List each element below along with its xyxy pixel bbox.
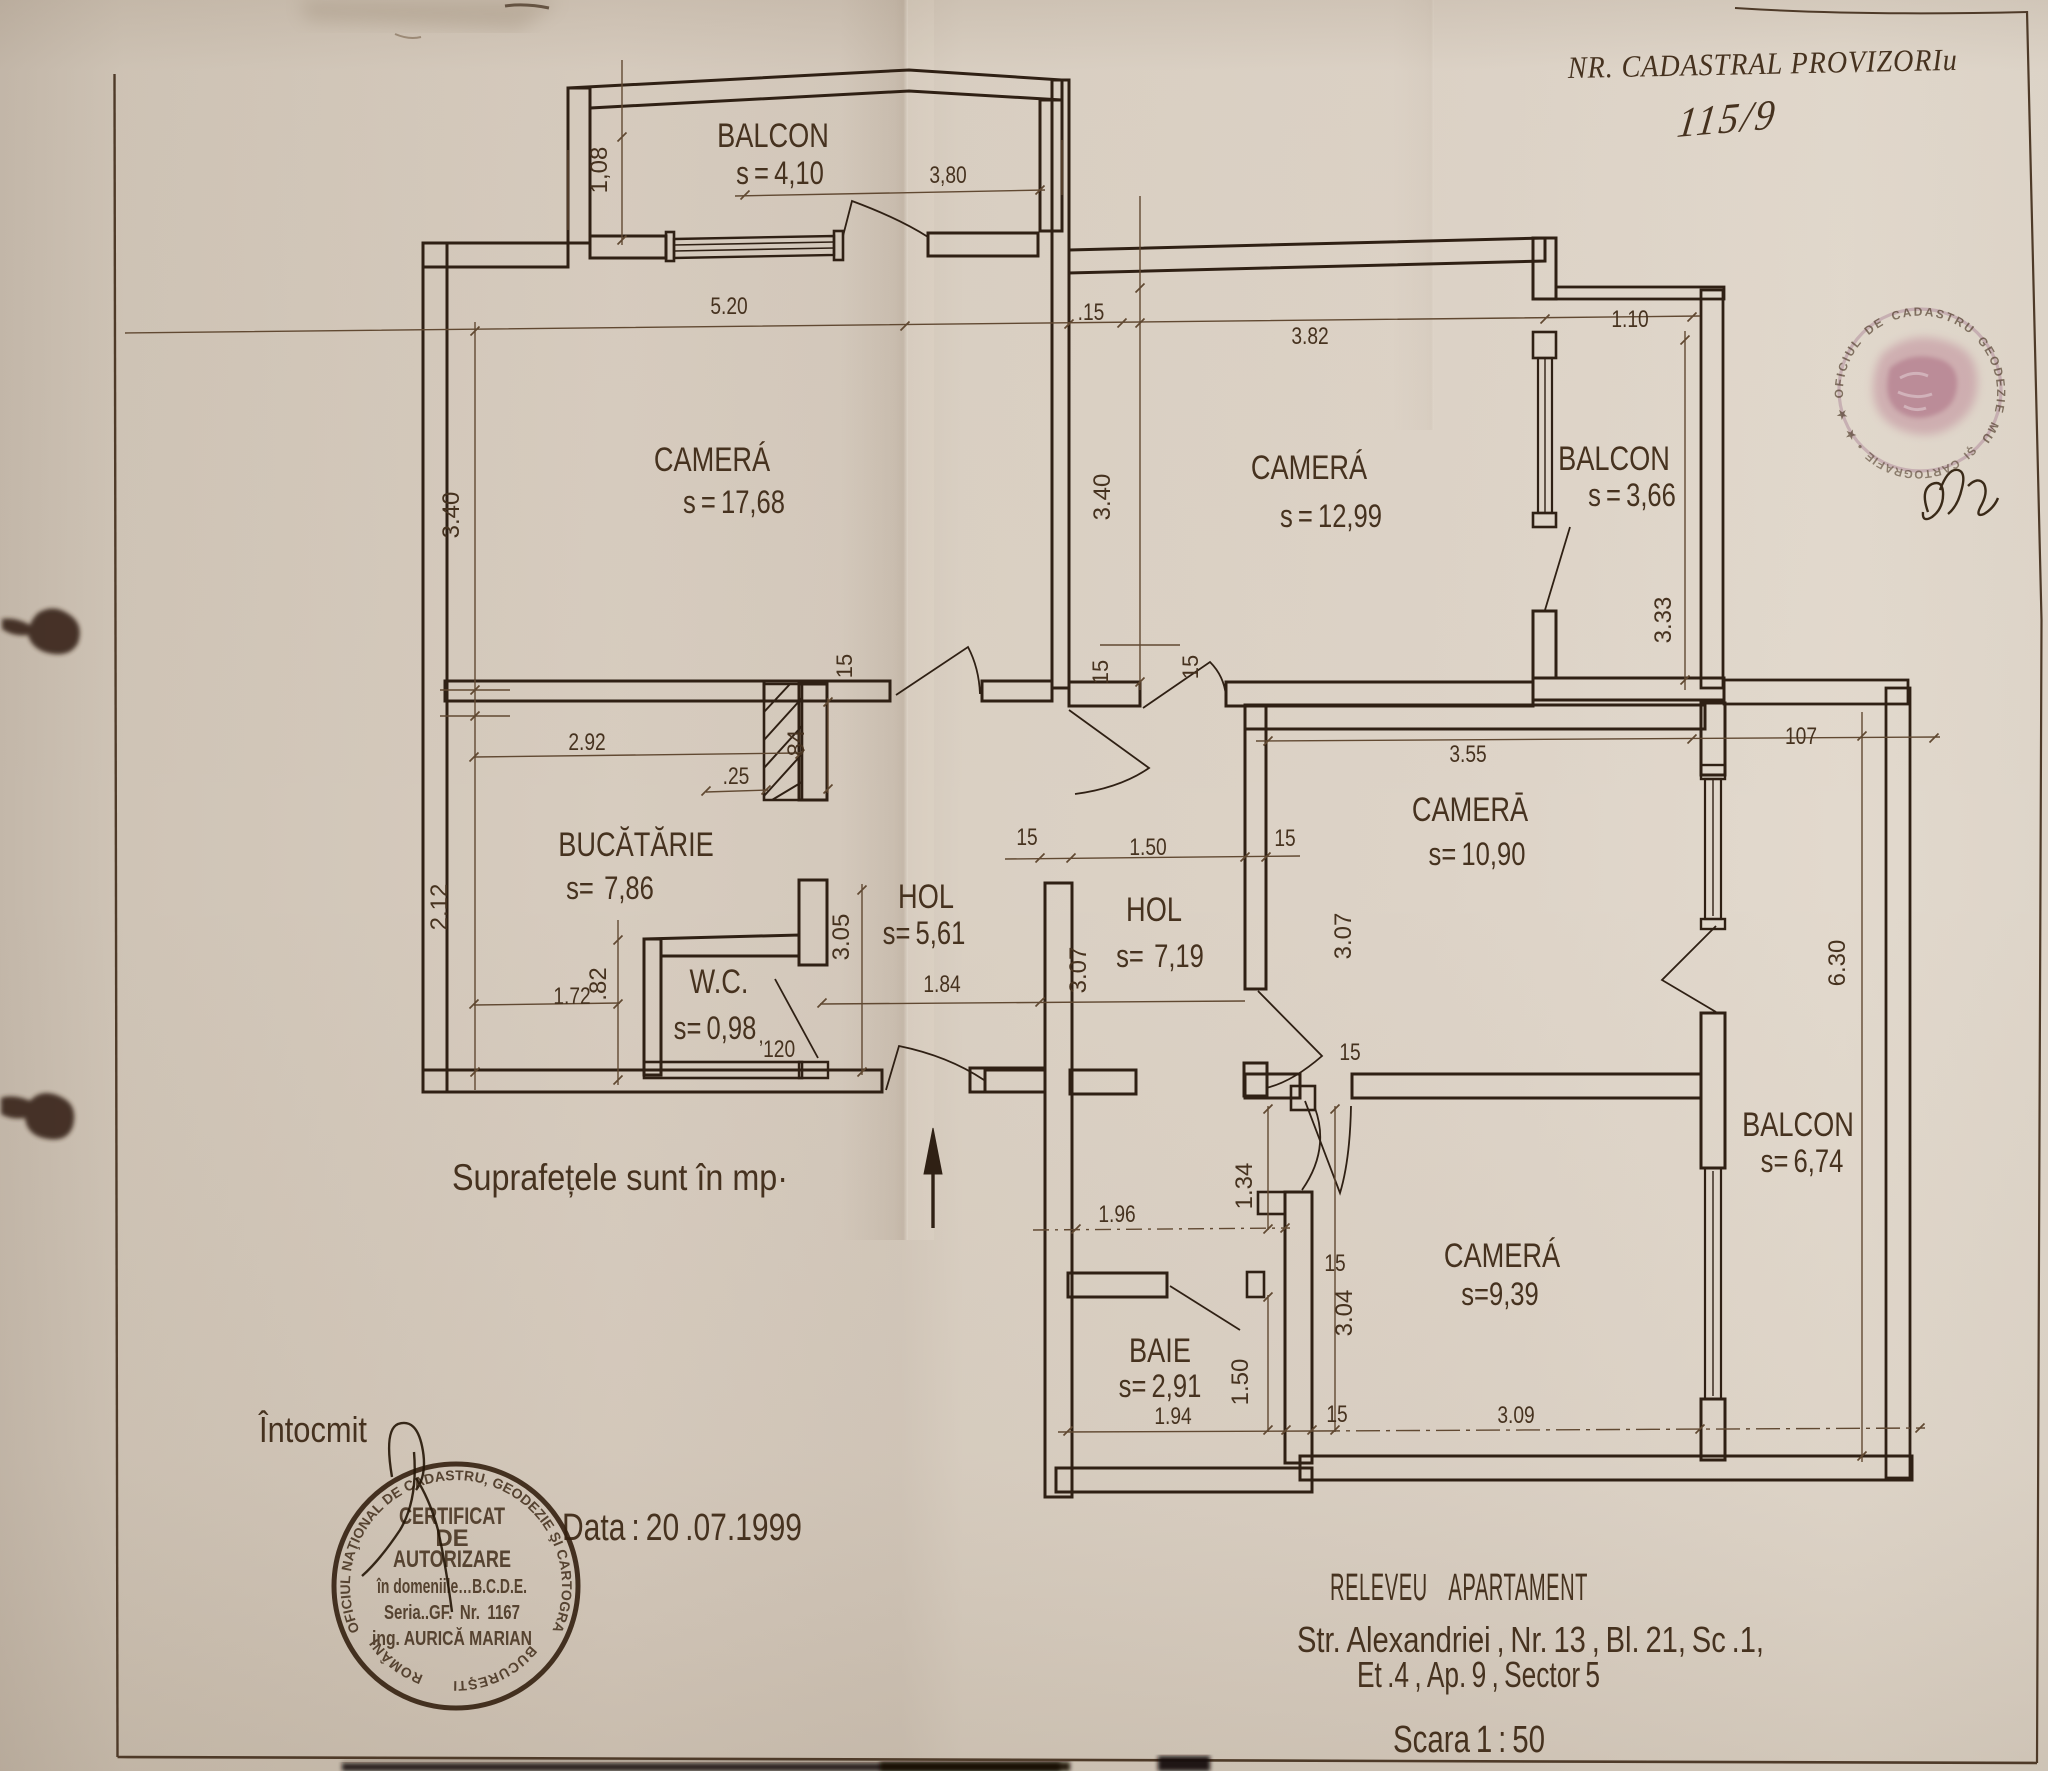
svg-text:1.50: 1.50 — [1227, 1359, 1254, 1406]
svg-text:ing. AURICĂ MARIAN: ing. AURICĂ MARIAN — [372, 1627, 532, 1650]
svg-text:în domeniile…B.C.D.E.: în domeniile…B.C.D.E. — [376, 1576, 527, 1598]
svg-text:6.30: 6.30 — [1824, 940, 1851, 987]
svg-text:1.10: 1.10 — [1611, 305, 1648, 333]
svg-text:3,80: 3,80 — [929, 161, 966, 189]
svg-text:CAMERÁ: CAMERÁ — [1251, 448, 1368, 487]
svg-text:1.34: 1.34 — [1231, 1163, 1258, 1210]
svg-text:BALCON: BALCON — [1558, 439, 1670, 478]
svg-text:.82: .82 — [585, 967, 612, 1000]
svg-text:3.05: 3.05 — [828, 914, 855, 961]
svg-text:115/9: 115/9 — [1675, 91, 1780, 147]
svg-text:2.12: 2.12 — [426, 884, 453, 931]
svg-text:RELEVEU APARTAMENT: RELEVEU APARTAMENT — [1330, 1567, 1588, 1609]
svg-text:s= 10,90: s= 10,90 — [1429, 837, 1526, 872]
svg-text:s= 5,61: s= 5,61 — [883, 916, 966, 951]
svg-text:3.55: 3.55 — [1449, 740, 1486, 768]
svg-text:3.09: 3.09 — [1497, 1401, 1534, 1429]
svg-text:.25: .25 — [723, 762, 750, 790]
svg-text:5.20: 5.20 — [710, 292, 747, 320]
svg-text:3.33: 3.33 — [1650, 597, 1677, 644]
svg-text:15: 15 — [1324, 1249, 1345, 1277]
svg-text:15: 15 — [832, 654, 857, 678]
svg-text:W.C.: W.C. — [690, 962, 749, 1001]
svg-text:3.04: 3.04 — [1331, 1290, 1358, 1337]
svg-text:s = 12,99: s = 12,99 — [1280, 499, 1382, 534]
svg-text:s= 7,86: s= 7,86 — [566, 871, 654, 906]
svg-text:3.82: 3.82 — [1291, 322, 1328, 350]
svg-text:15: 15 — [1016, 823, 1037, 851]
svg-text:15: 15 — [1326, 1400, 1347, 1428]
svg-text:.15: .15 — [1078, 298, 1105, 326]
svg-text:BALCON: BALCON — [1742, 1105, 1854, 1144]
svg-text:CAMERÁ: CAMERÁ — [1444, 1236, 1561, 1275]
svg-text:Data : 20 .07.1999: Data : 20 .07.1999 — [562, 1507, 802, 1549]
svg-text:1,08: 1,08 — [586, 147, 613, 194]
svg-text:BALCON: BALCON — [717, 116, 829, 155]
svg-text:s = 4,10: s = 4,10 — [736, 156, 824, 191]
svg-text:15: 15 — [1178, 655, 1203, 679]
svg-text:’120: ’120 — [759, 1035, 795, 1063]
svg-text:Scara 1 : 50: Scara 1 : 50 — [1393, 1719, 1545, 1761]
svg-text:Întocmit: Întocmit — [258, 1409, 367, 1450]
svg-text:HOL: HOL — [1126, 890, 1182, 929]
svg-text:1.94: 1.94 — [1154, 1402, 1191, 1430]
svg-text:CAMERĀ: CAMERĀ — [1412, 790, 1529, 829]
svg-text:BAIE: BAIE — [1129, 1331, 1191, 1370]
svg-text:s= 0,98: s= 0,98 — [674, 1011, 757, 1046]
svg-text:s=9,39: s=9,39 — [1461, 1277, 1539, 1312]
svg-text:3.07: 3.07 — [1065, 947, 1092, 994]
svg-text:s= 6,74: s= 6,74 — [1761, 1144, 1844, 1179]
svg-text:AUTORIZARE: AUTORIZARE — [393, 1546, 511, 1573]
svg-text:HOL: HOL — [898, 877, 954, 916]
svg-text:Suprafețele sunt în mp·: Suprafețele sunt în mp· — [452, 1157, 788, 1198]
svg-text:15: 15 — [1274, 824, 1295, 852]
svg-text:1.50: 1.50 — [1129, 833, 1166, 861]
svg-text:3.07: 3.07 — [1330, 913, 1357, 960]
svg-text:107: 107 — [1785, 722, 1817, 750]
svg-text:84: 84 — [783, 730, 810, 757]
svg-text:15: 15 — [1088, 660, 1113, 684]
svg-text:BUCĂTĂRIE: BUCĂTĂRIE — [558, 825, 714, 864]
svg-text:1.96: 1.96 — [1098, 1200, 1135, 1228]
svg-text:s= 7,19: s= 7,19 — [1116, 939, 1204, 974]
svg-text:2.92: 2.92 — [568, 728, 605, 756]
svg-text:15: 15 — [1339, 1038, 1360, 1066]
svg-text:CAMERÁ: CAMERÁ — [654, 440, 771, 479]
svg-text:Et .4 , Ap. 9 , Sector 5: Et .4 , Ap. 9 , Sector 5 — [1357, 1654, 1600, 1695]
svg-text:s= 2,91: s= 2,91 — [1119, 1369, 1202, 1404]
svg-text:3.40: 3.40 — [1089, 474, 1116, 521]
svg-text:s = 3,66: s = 3,66 — [1588, 478, 1676, 513]
svg-text:1.84: 1.84 — [923, 970, 960, 998]
svg-text:3.40: 3.40 — [438, 492, 465, 539]
svg-text:s = 17,68: s = 17,68 — [683, 485, 785, 520]
